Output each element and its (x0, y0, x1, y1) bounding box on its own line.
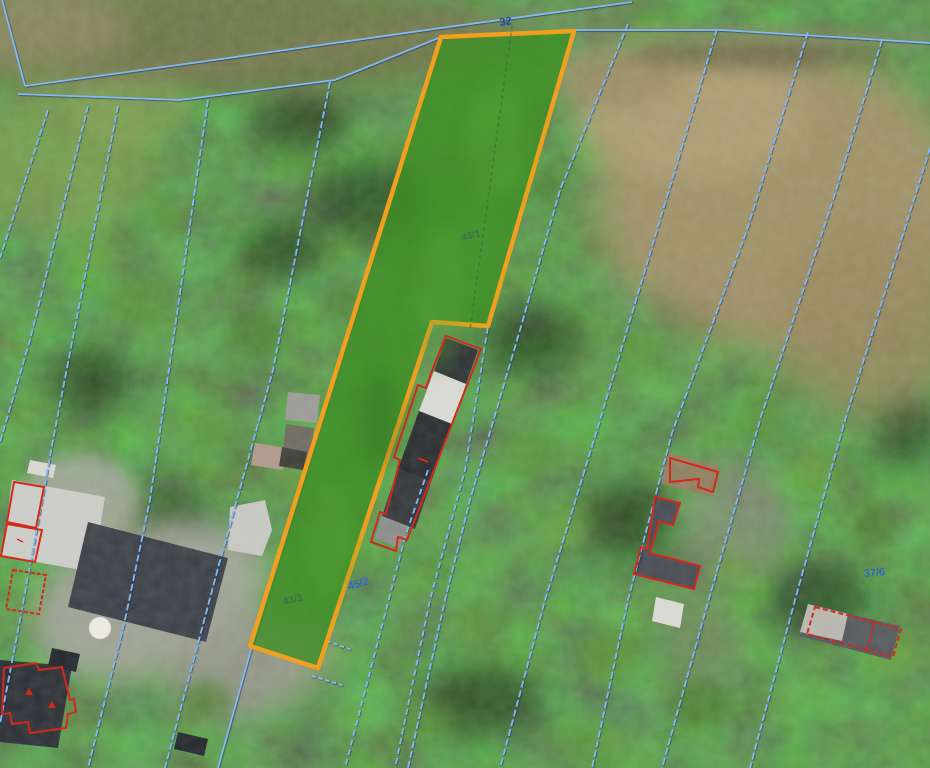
map-viewport[interactable]: 32 43/1 43/3 45/2 37/6 (0, 0, 930, 768)
parcel-label-37-6: 37/6 (863, 567, 885, 580)
aerial-map[interactable]: 32 43/1 43/3 45/2 37/6 (0, 0, 930, 768)
parcel-label-32: 32 (499, 15, 513, 29)
